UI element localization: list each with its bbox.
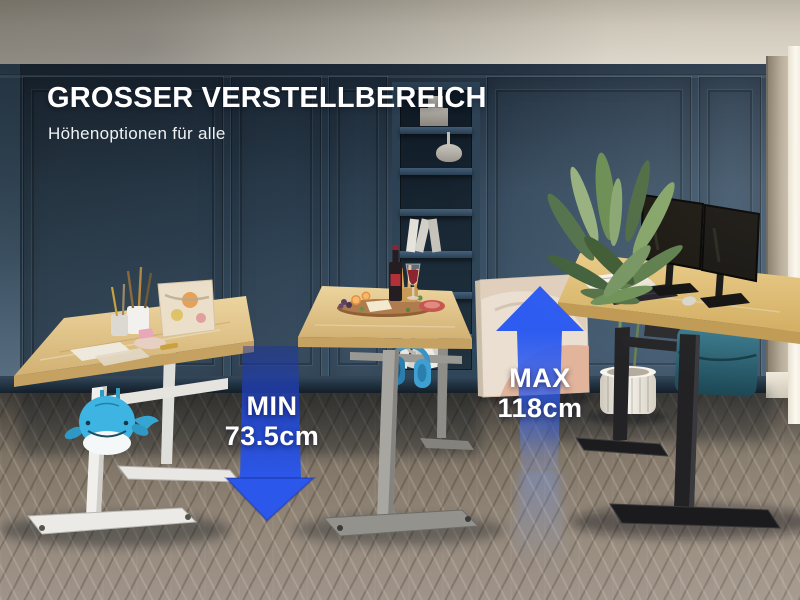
- min-height-annotation: MIN 73.5cm: [197, 391, 347, 451]
- page-title: GROSSER VERSTELLBEREICH: [47, 82, 487, 115]
- headline-block: GROSSER VERSTELLBEREICH Höhenoptionen fü…: [47, 82, 487, 144]
- max-value: 118cm: [467, 393, 613, 423]
- min-value: 73.5cm: [197, 421, 347, 451]
- min-label: MIN: [197, 391, 347, 421]
- monitor-right: [702, 205, 759, 281]
- wine-bottle: [389, 245, 402, 301]
- page-subtitle: Höhenoptionen für alle: [48, 124, 487, 144]
- max-height-annotation: MAX 118cm: [467, 363, 613, 423]
- max-label: MAX: [467, 363, 613, 393]
- product-scene: GROSSER VERSTELLBEREICH Höhenoptionen fü…: [0, 0, 800, 600]
